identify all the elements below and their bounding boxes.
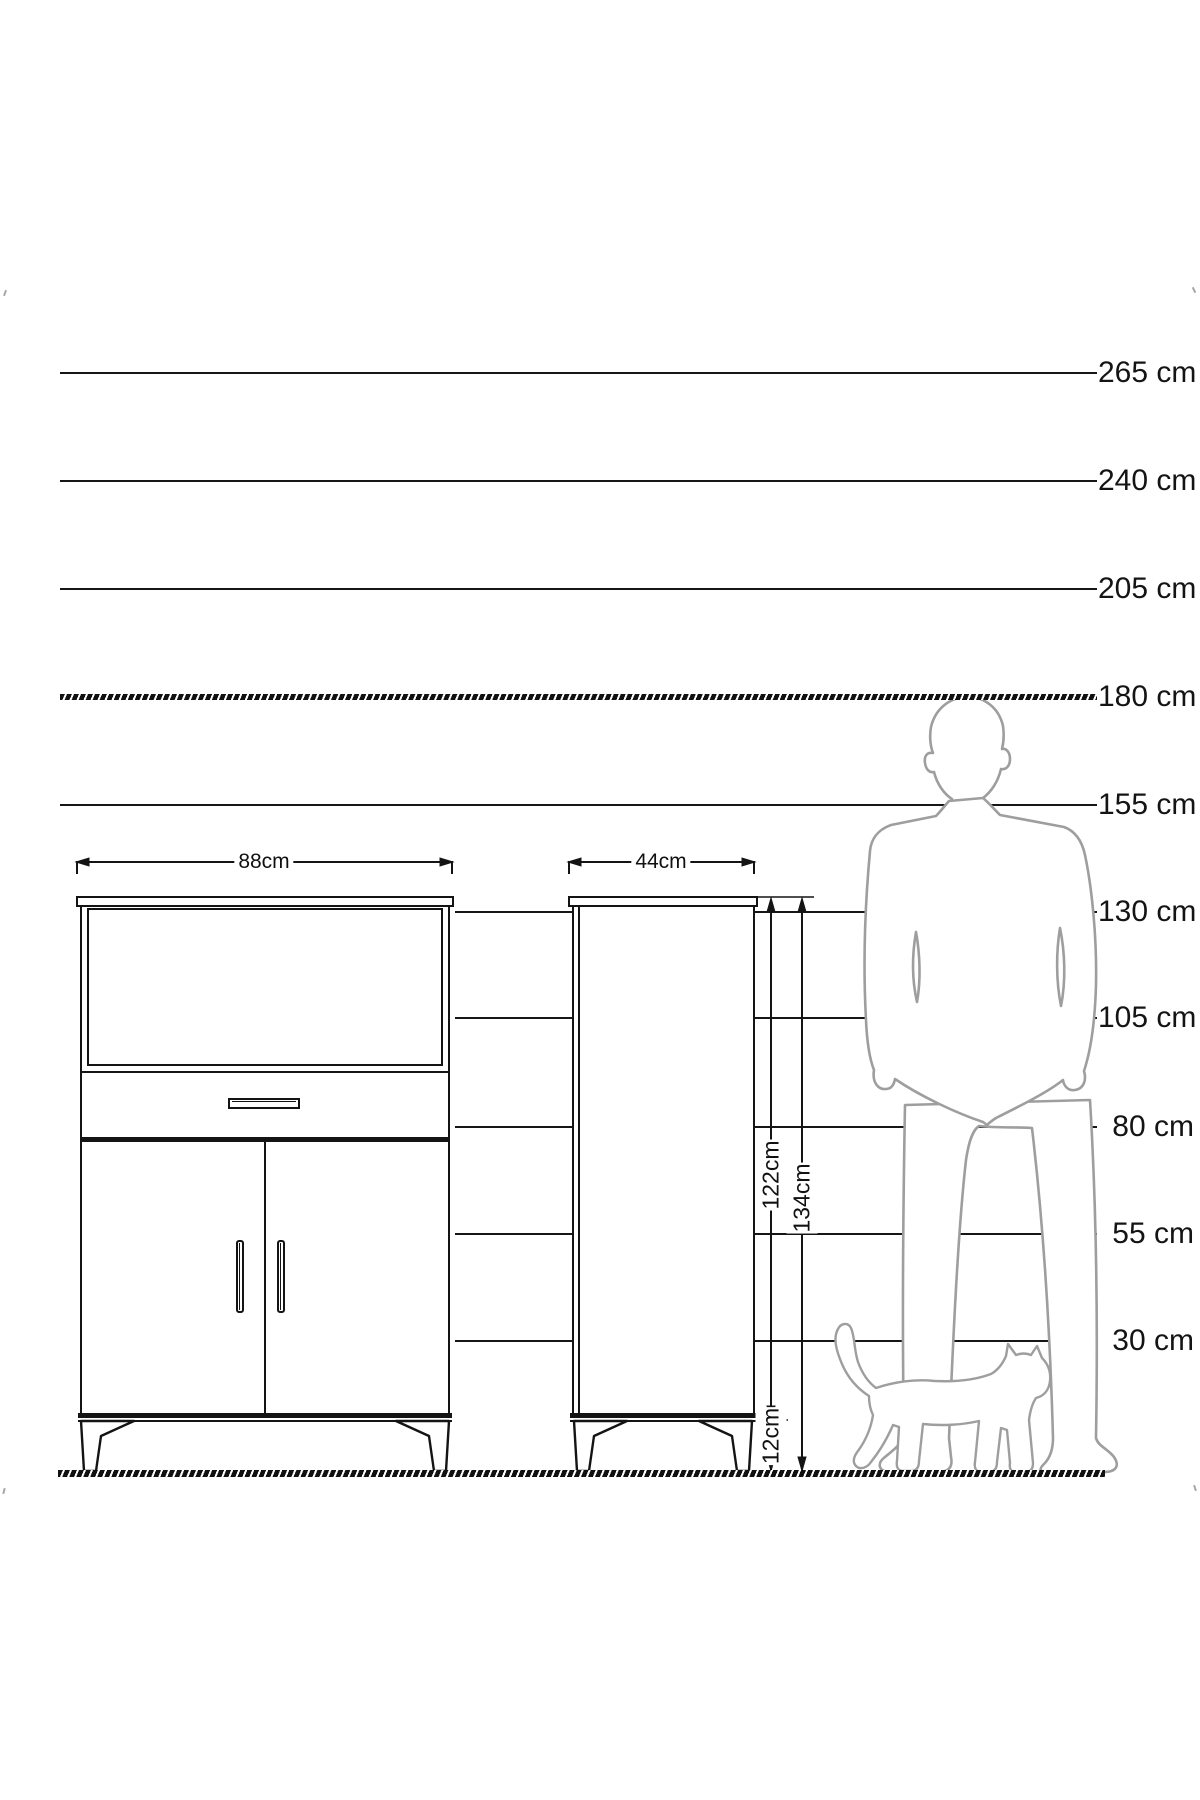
ref-line-180cm-hatched (60, 694, 1097, 700)
scale-label-205: 205 cm (1098, 571, 1194, 607)
scale-label-30: 30 cm (1098, 1323, 1194, 1359)
scale-label-180: 180 cm (1098, 679, 1194, 715)
small-cabinet-body-height-label: 122cm (756, 1139, 787, 1210)
scale-label-155: 155 cm (1098, 787, 1194, 823)
man-silhouette (865, 697, 1117, 1472)
large-cabinet-width-label: 88cm (234, 850, 293, 874)
scale-label-265: 265 cm (1098, 355, 1194, 391)
ground-line (58, 1470, 1105, 1477)
cabinet-legs (81, 1421, 752, 1471)
small-cabinet-total-height-label: 134cm (787, 1162, 818, 1233)
large-cabinet-right-leg (396, 1421, 449, 1471)
scale-label-130: 130 cm (1098, 894, 1194, 930)
leg-height-label: 12cm (756, 1407, 787, 1465)
large-cabinet-left-leg (81, 1421, 134, 1471)
scale-label-240: 240 cm (1098, 463, 1194, 499)
furniture-dimension-diagram: 265 cm 240 cm 205 cm 180 cm 155 cm 130 c… (0, 0, 1200, 1800)
small-cabinet-width-label: 44cm (631, 850, 690, 874)
scale-label-80: 80 cm (1098, 1109, 1194, 1145)
scale-label-105: 105 cm (1098, 1000, 1194, 1036)
small-cabinet-right-leg (699, 1421, 752, 1471)
man-jacket (865, 798, 1097, 1125)
scale-label-55: 55 cm (1098, 1216, 1194, 1252)
small-cabinet-left-leg (574, 1421, 627, 1471)
